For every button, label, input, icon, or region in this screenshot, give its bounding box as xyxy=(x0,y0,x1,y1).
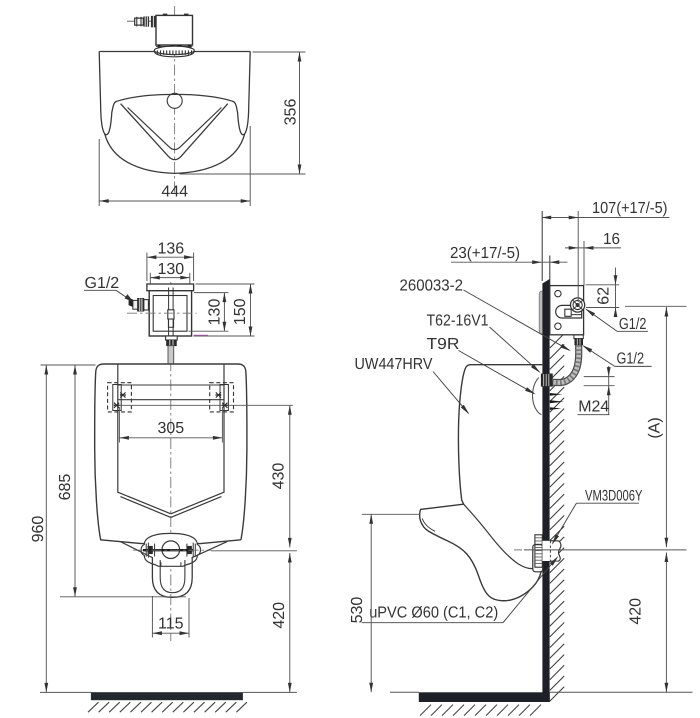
svg-text:16: 16 xyxy=(603,231,620,248)
svg-text:(A): (A) xyxy=(647,417,664,438)
svg-text:150: 150 xyxy=(232,298,249,325)
svg-text:685: 685 xyxy=(57,474,74,501)
svg-text:136: 136 xyxy=(157,241,184,258)
svg-text:uPVC Ø60 (C1, C2): uPVC Ø60 (C1, C2) xyxy=(369,605,498,622)
svg-text:960: 960 xyxy=(30,516,47,543)
svg-text:260033-2: 260033-2 xyxy=(400,278,464,295)
svg-text:107(+17/-5): 107(+17/-5) xyxy=(592,200,668,217)
svg-text:M24: M24 xyxy=(578,399,609,416)
svg-text:420: 420 xyxy=(628,598,645,625)
svg-text:62: 62 xyxy=(596,287,613,305)
svg-text:115: 115 xyxy=(158,615,184,632)
svg-text:130: 130 xyxy=(206,299,223,326)
svg-text:G1/2: G1/2 xyxy=(617,350,645,367)
svg-text:444: 444 xyxy=(161,184,188,201)
svg-text:356: 356 xyxy=(282,99,299,126)
svg-text:420: 420 xyxy=(271,602,288,629)
svg-text:G1/2: G1/2 xyxy=(619,316,647,333)
svg-text:T62-16V1: T62-16V1 xyxy=(427,312,489,329)
svg-text:UW447HRV: UW447HRV xyxy=(355,356,433,373)
svg-text:G1/2: G1/2 xyxy=(85,275,120,292)
svg-text:430: 430 xyxy=(271,463,288,490)
svg-text:130: 130 xyxy=(157,261,184,278)
svg-text:530: 530 xyxy=(349,597,366,624)
svg-text:VM3D006Y: VM3D006Y xyxy=(585,488,643,505)
svg-text:T9R: T9R xyxy=(427,336,460,353)
svg-text:23(+17/-5): 23(+17/-5) xyxy=(450,245,520,262)
svg-text:305: 305 xyxy=(157,420,184,437)
